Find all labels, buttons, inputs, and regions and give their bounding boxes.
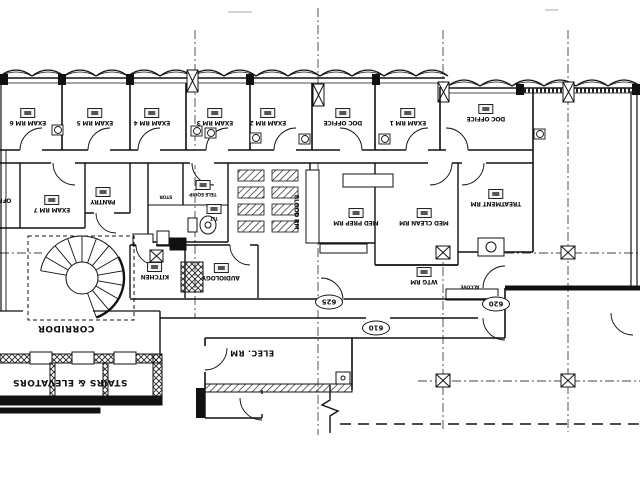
column-grid-lines xyxy=(0,8,640,435)
spiral-stair xyxy=(28,236,134,320)
stairs-elevators-block xyxy=(0,352,162,413)
storage-room-below-elec xyxy=(196,388,265,420)
left-exterior-wall xyxy=(1,83,6,311)
door-number-625: 625 xyxy=(315,295,343,310)
top-room-band-walls xyxy=(0,83,533,252)
faint-top-dashes xyxy=(228,10,558,12)
mid-room-door-gaps xyxy=(51,160,486,216)
floor-plan-page: EXAM RM 6 EXAM RM 5 EXAM RM 4 EXAM RM 3 … xyxy=(0,0,640,480)
top-room-door-swings xyxy=(20,128,468,150)
door-number-620: 620 xyxy=(482,297,510,312)
elec-room xyxy=(203,338,352,392)
toilet-fixture xyxy=(188,216,216,234)
mid-room-door-swings xyxy=(53,163,484,233)
floorplan-linework xyxy=(0,0,640,480)
door-number-610: 610 xyxy=(362,321,390,336)
mid-room-band-walls xyxy=(0,163,533,265)
sink-symbols xyxy=(52,125,545,144)
break-symbol xyxy=(322,385,640,433)
audio-booth xyxy=(181,262,203,292)
blood-room-chairs xyxy=(238,170,298,232)
